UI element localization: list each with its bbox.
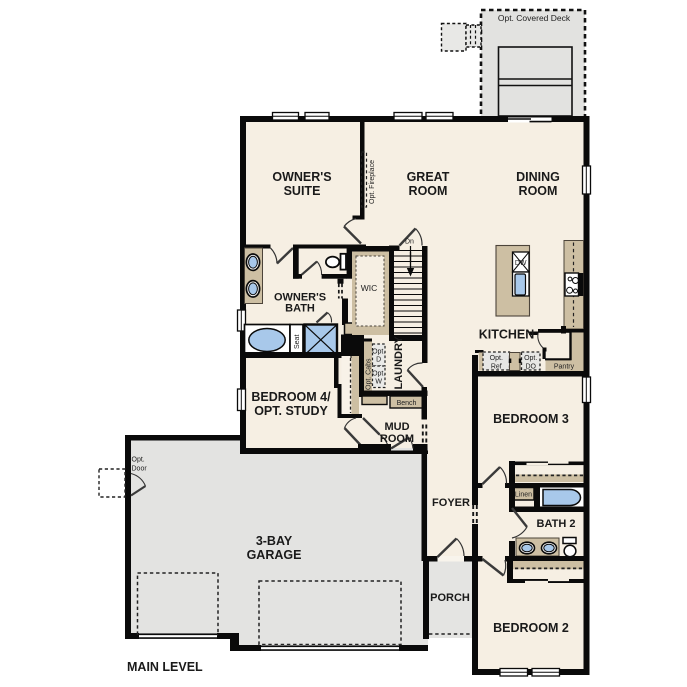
- svg-text:MUD: MUD: [384, 421, 409, 433]
- svg-text:Dn: Dn: [405, 239, 414, 246]
- svg-text:Opt.: Opt.: [372, 371, 385, 378]
- svg-text:3-BAY: 3-BAY: [256, 534, 293, 548]
- svg-text:ROOM: ROOM: [519, 184, 558, 198]
- svg-text:SUITE: SUITE: [284, 184, 321, 198]
- svg-text:Opt. Fireplace: Opt. Fireplace: [369, 160, 376, 204]
- svg-text:OPT. STUDY: OPT. STUDY: [254, 404, 328, 418]
- svg-text:WIC: WIC: [361, 283, 378, 293]
- svg-text:Bench: Bench: [397, 400, 417, 407]
- svg-text:Opt. Covered Deck: Opt. Covered Deck: [498, 13, 571, 23]
- svg-text:BATH 2: BATH 2: [537, 518, 576, 530]
- svg-text:Opt.: Opt.: [490, 355, 503, 362]
- svg-text:Pantry: Pantry: [554, 364, 575, 371]
- svg-text:DO: DO: [525, 364, 536, 371]
- svg-text:Opt.: Opt.: [372, 349, 385, 356]
- svg-text:Seat: Seat: [294, 335, 301, 349]
- svg-text:GARAGE: GARAGE: [247, 548, 302, 562]
- svg-text:Linen: Linen: [515, 492, 532, 499]
- svg-text:Opt.: Opt.: [132, 457, 145, 464]
- svg-text:LAUNDRY: LAUNDRY: [393, 335, 405, 389]
- svg-text:W: W: [375, 379, 382, 386]
- svg-text:D: D: [376, 357, 381, 364]
- svg-text:KITCHEN: KITCHEN: [479, 328, 535, 342]
- svg-text:ROOM: ROOM: [409, 184, 448, 198]
- svg-text:DW: DW: [515, 260, 527, 267]
- svg-text:DINING: DINING: [516, 170, 560, 184]
- svg-text:OWNER'S: OWNER'S: [272, 170, 331, 184]
- svg-text:Ref: Ref: [491, 364, 502, 371]
- svg-text:ROOM: ROOM: [380, 433, 414, 445]
- svg-text:BEDROOM 4/: BEDROOM 4/: [251, 390, 331, 404]
- svg-text:BEDROOM 3: BEDROOM 3: [493, 412, 569, 426]
- svg-text:FOYER: FOYER: [432, 497, 470, 509]
- svg-text:MAIN LEVEL: MAIN LEVEL: [127, 660, 203, 674]
- svg-text:BEDROOM 2: BEDROOM 2: [493, 621, 569, 635]
- svg-text:GREAT: GREAT: [407, 170, 450, 184]
- svg-text:PORCH: PORCH: [430, 592, 470, 604]
- svg-text:Door: Door: [132, 466, 148, 473]
- svg-text:Opt.: Opt.: [524, 355, 537, 362]
- svg-text:BATH: BATH: [285, 303, 315, 315]
